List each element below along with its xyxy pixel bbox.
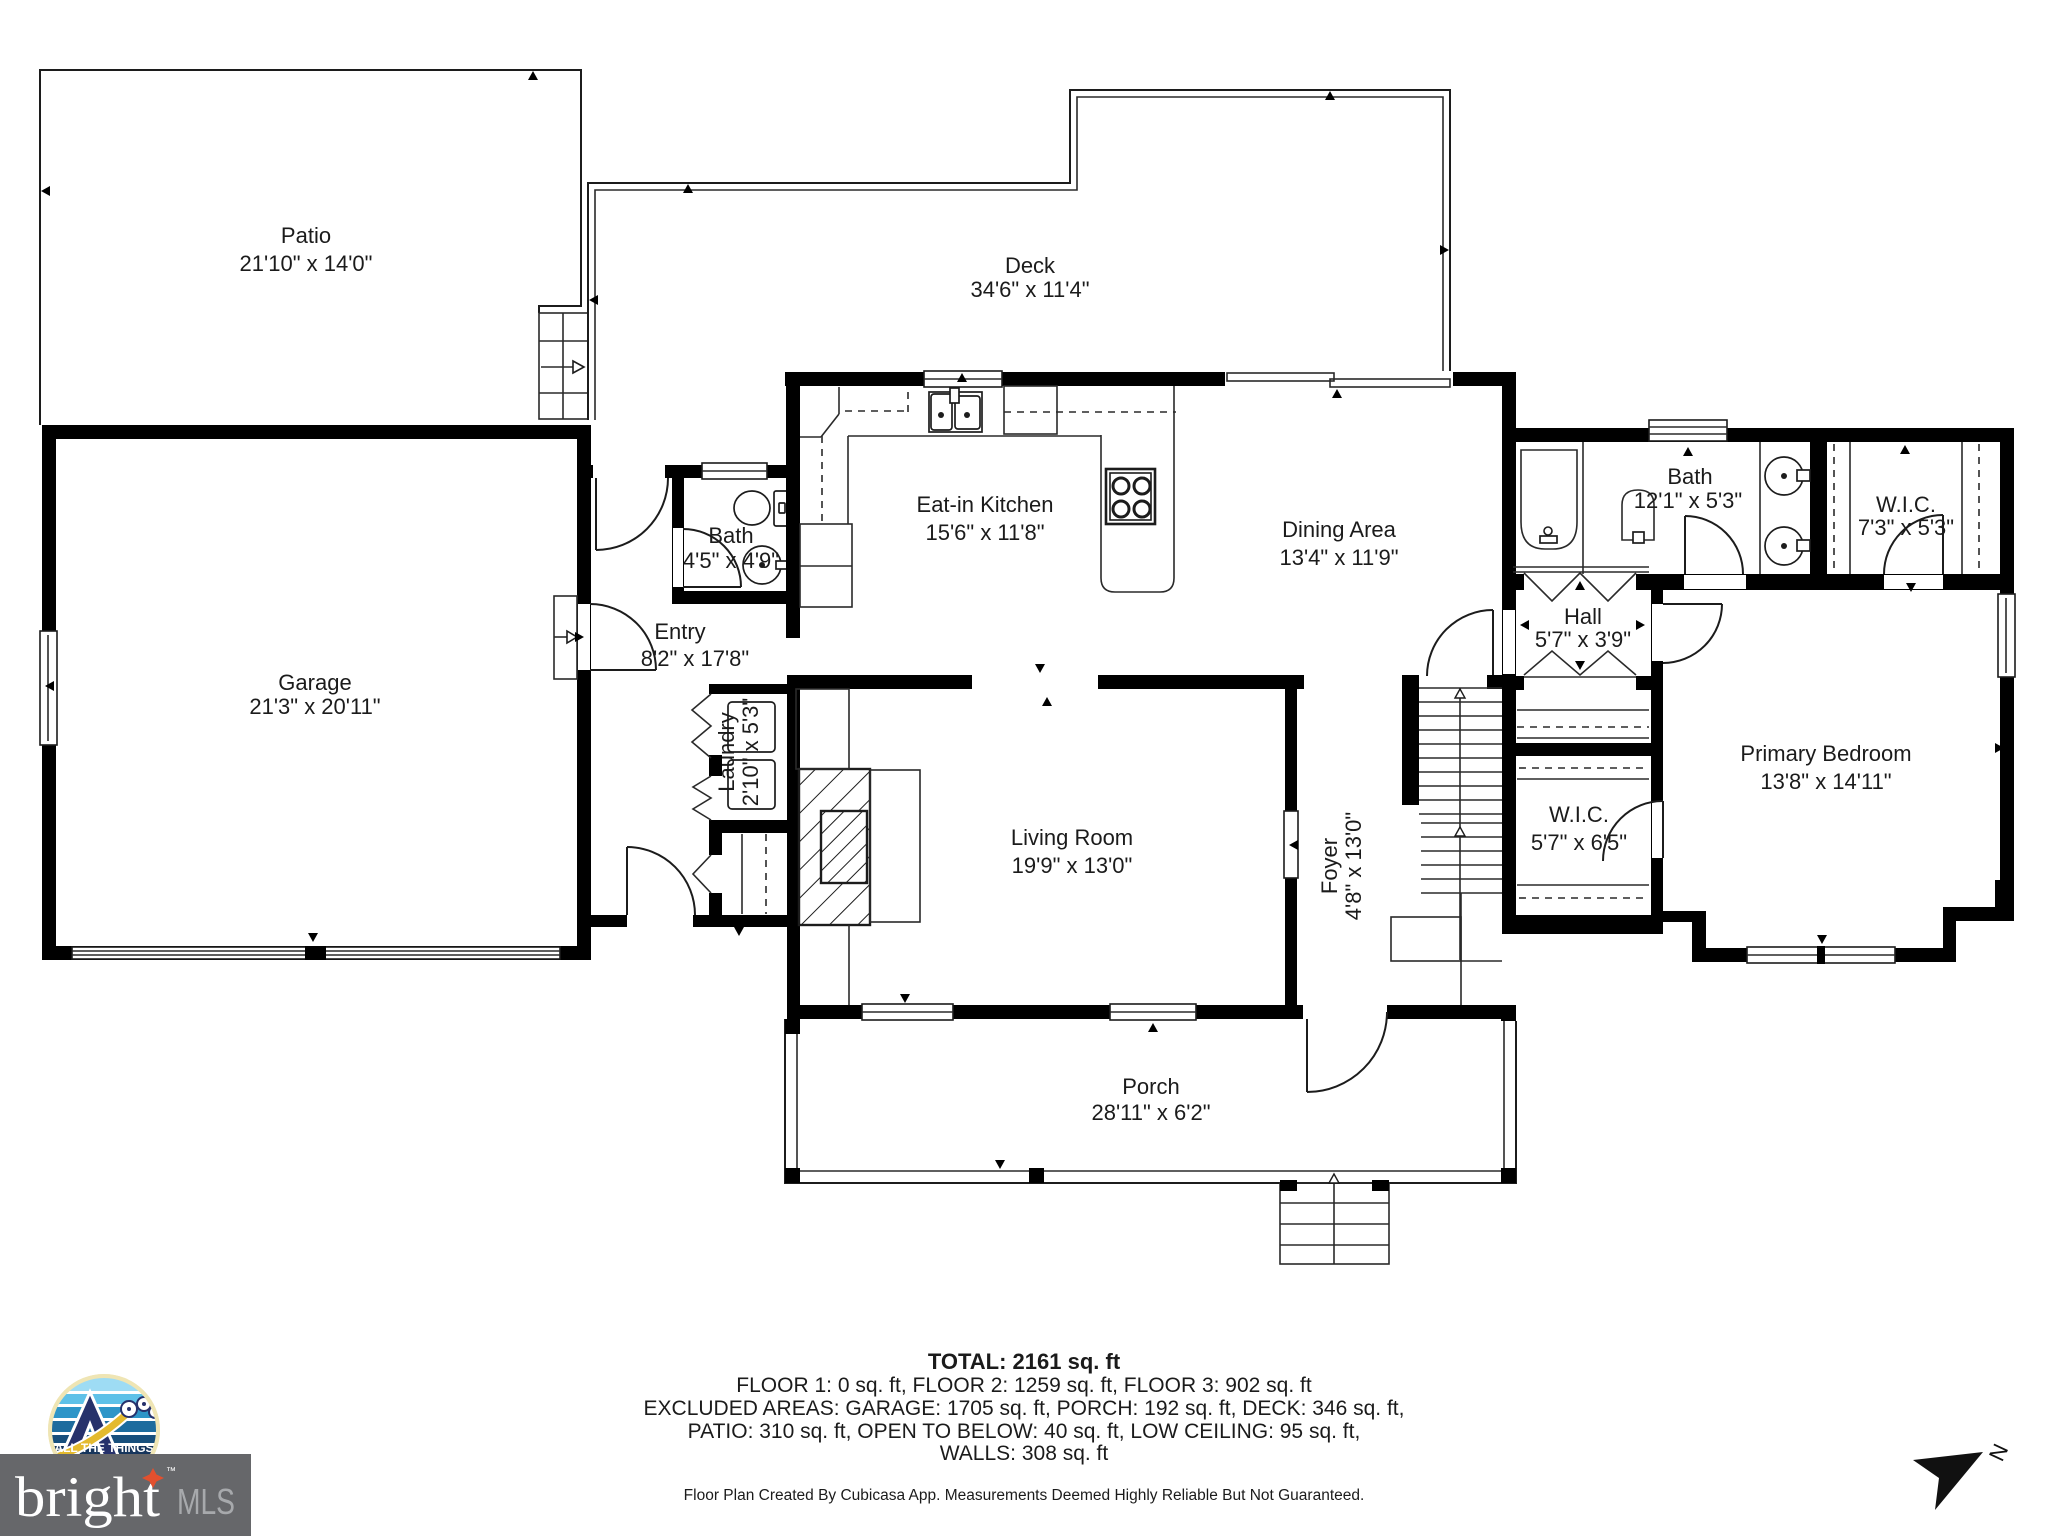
svg-text:bright: bright (15, 1466, 160, 1529)
svg-text:19'9" x 13'0": 19'9" x 13'0" (1012, 853, 1133, 878)
svg-text:8'2" x 17'8": 8'2" x 17'8" (641, 646, 749, 671)
svg-text:WALLS: 308 sq. ft: WALLS: 308 sq. ft (940, 1442, 1109, 1465)
svg-text:21'3" x 20'11": 21'3" x 20'11" (249, 694, 380, 719)
svg-text:W.I.C.: W.I.C. (1549, 802, 1609, 827)
svg-text:Eat-in Kitchen: Eat-in Kitchen (917, 492, 1054, 517)
svg-text:EXCLUDED AREAS: GARAGE: 1705 s: EXCLUDED AREAS: GARAGE: 1705 sq. ft, POR… (644, 1397, 1405, 1420)
svg-text:ALL THE THINGS: ALL THE THINGS (54, 1441, 153, 1455)
svg-text:Bath: Bath (708, 523, 753, 548)
svg-text:Floor Plan Created By Cubicasa: Floor Plan Created By Cubicasa App. Meas… (684, 1487, 1365, 1504)
svg-text:PATIO: 310 sq. ft, OPEN TO BEL: PATIO: 310 sq. ft, OPEN TO BELOW: 40 sq.… (688, 1420, 1361, 1443)
svg-text:2'10" x 5'3": 2'10" x 5'3" (738, 698, 763, 806)
svg-text:Deck: Deck (1005, 253, 1056, 278)
svg-text:15'6" x 11'8": 15'6" x 11'8" (925, 520, 1044, 545)
svg-text:21'10" x 14'0": 21'10" x 14'0" (240, 251, 373, 276)
svg-text:Laundry: Laundry (714, 712, 739, 792)
svg-text:W.I.C.: W.I.C. (1876, 492, 1936, 517)
svg-text:13'4" x 11'9": 13'4" x 11'9" (1279, 545, 1398, 570)
svg-text:5'7" x 3'9": 5'7" x 3'9" (1535, 627, 1631, 652)
svg-text:4'5" x 4'9": 4'5" x 4'9" (683, 548, 779, 573)
svg-text:Patio: Patio (281, 223, 331, 248)
svg-text:Living Room: Living Room (1011, 825, 1133, 850)
svg-text:13'8" x 14'11": 13'8" x 14'11" (1760, 769, 1891, 794)
svg-text:Entry: Entry (654, 619, 705, 644)
svg-text:Dining Area: Dining Area (1282, 517, 1397, 542)
svg-text:TOTAL: 2161 sq. ft: TOTAL: 2161 sq. ft (928, 1349, 1121, 1374)
svg-text:Hall: Hall (1564, 604, 1602, 629)
svg-text:5'7" x 6'5": 5'7" x 6'5" (1531, 830, 1627, 855)
svg-text:4'8" x 13'0": 4'8" x 13'0" (1341, 812, 1366, 920)
svg-text:28'11" x 6'2": 28'11" x 6'2" (1091, 1100, 1210, 1125)
svg-text:Primary Bedroom: Primary Bedroom (1740, 741, 1911, 766)
svg-text:Porch: Porch (1122, 1074, 1179, 1099)
svg-text:34'6" x 11'4": 34'6" x 11'4" (970, 277, 1089, 302)
svg-text:7'3" x 5'3": 7'3" x 5'3" (1858, 515, 1954, 540)
svg-text:12'1" x 5'3": 12'1" x 5'3" (1634, 488, 1742, 513)
svg-text:Foyer: Foyer (1317, 838, 1342, 894)
svg-text:MLS: MLS (177, 1481, 235, 1522)
svg-text:™: ™ (166, 1466, 176, 1477)
svg-text:FLOOR 1: 0 sq. ft, FLOOR 2: 12: FLOOR 1: 0 sq. ft, FLOOR 2: 1259 sq. ft,… (736, 1374, 1312, 1397)
svg-text:Garage: Garage (278, 670, 351, 695)
svg-text:Bath: Bath (1667, 464, 1712, 489)
